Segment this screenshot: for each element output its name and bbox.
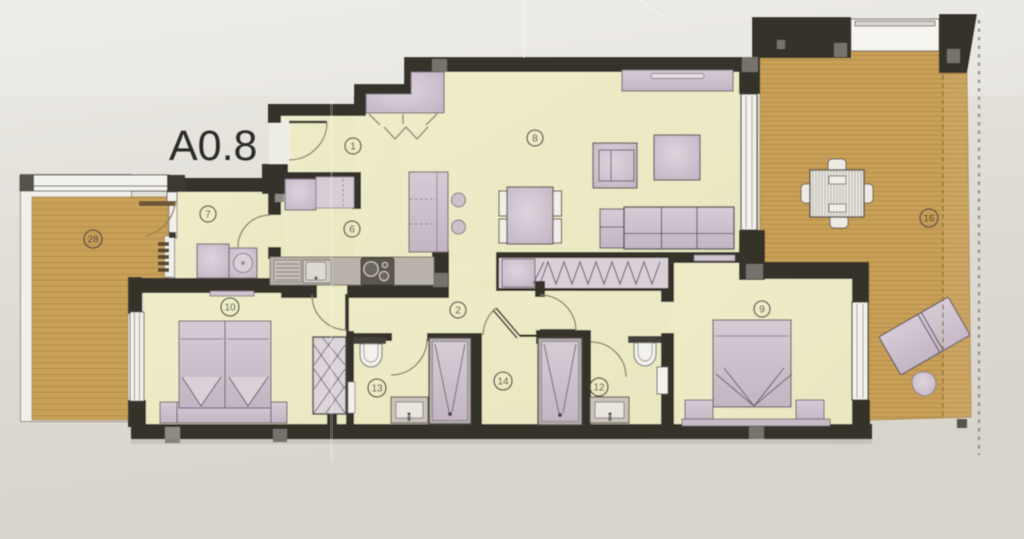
svg-text:9: 9 — [759, 305, 765, 316]
svg-text:6: 6 — [349, 225, 355, 236]
svg-text:12: 12 — [593, 383, 605, 394]
svg-text:10: 10 — [224, 303, 236, 314]
svg-text:13: 13 — [371, 384, 383, 395]
svg-text:28: 28 — [87, 235, 99, 246]
svg-text:7: 7 — [205, 210, 211, 221]
svg-text:1: 1 — [350, 142, 356, 153]
svg-text:16: 16 — [923, 214, 935, 225]
svg-text:8: 8 — [532, 134, 538, 145]
svg-text:A0.8: A0.8 — [169, 122, 257, 170]
svg-text:14: 14 — [497, 377, 509, 388]
svg-text:2: 2 — [455, 306, 461, 317]
